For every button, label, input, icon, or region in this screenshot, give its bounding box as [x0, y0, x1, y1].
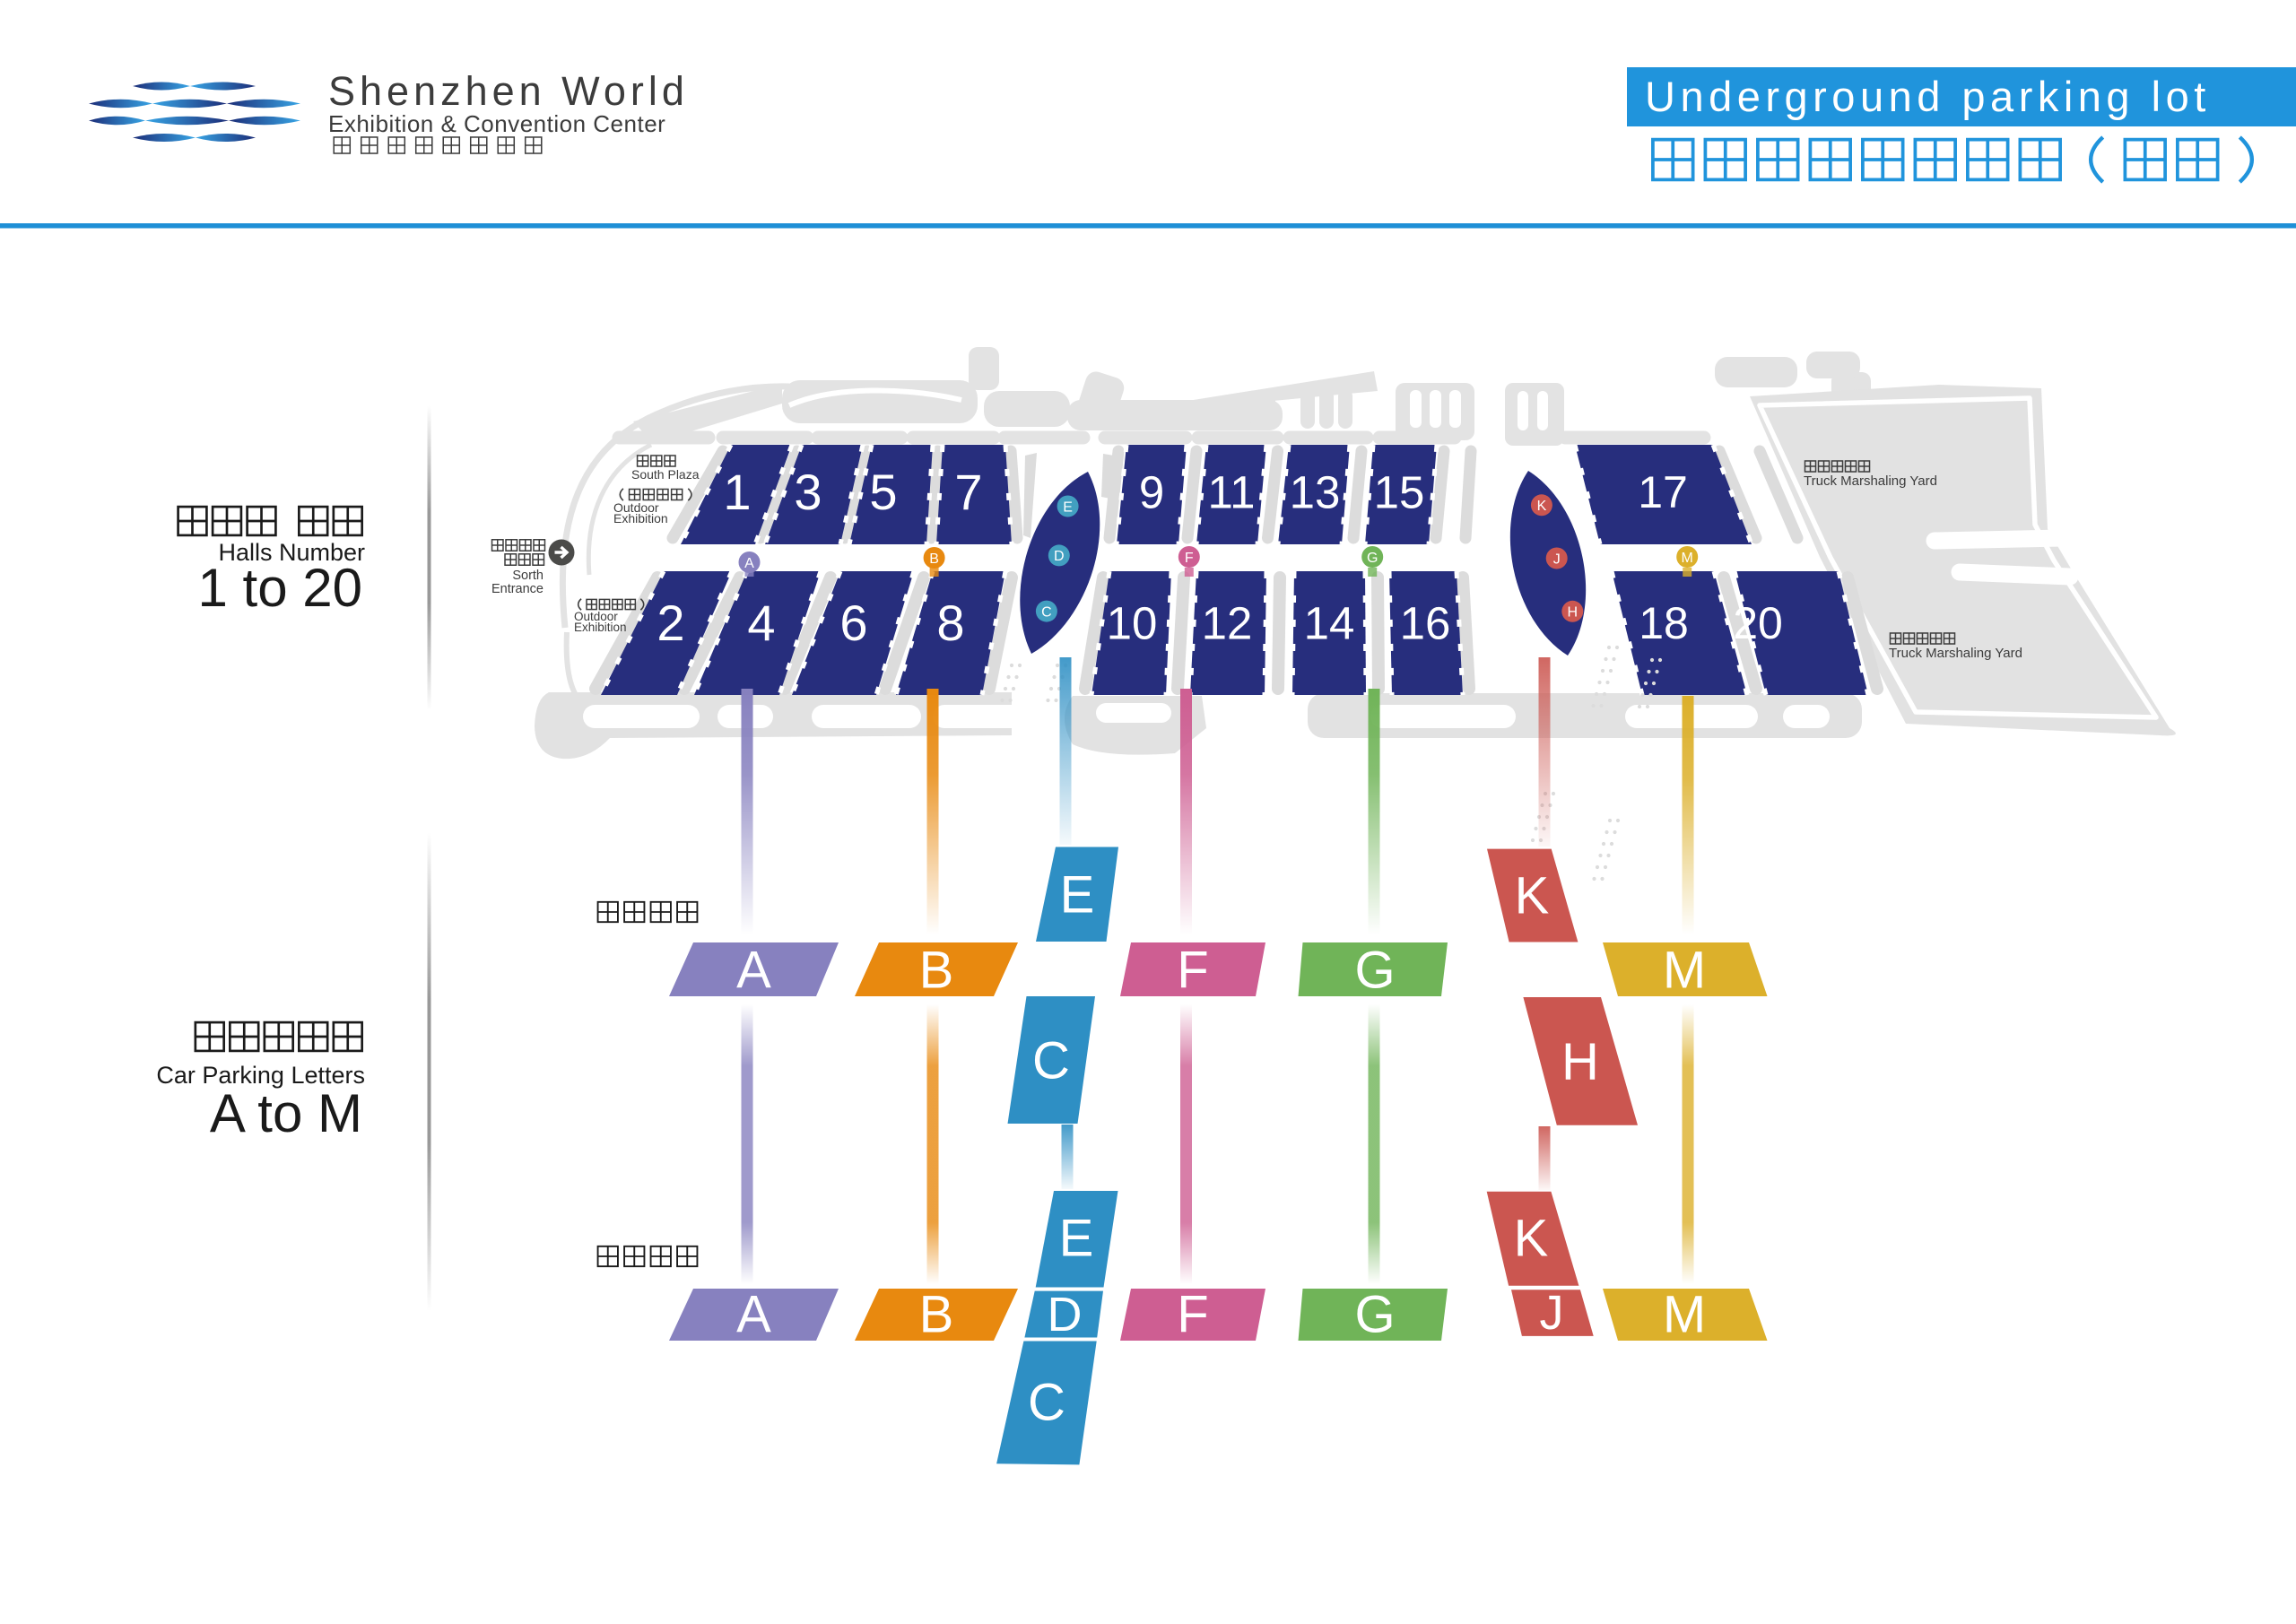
svg-text:20: 20 — [1733, 598, 1783, 648]
svg-text:15: 15 — [1374, 466, 1425, 517]
svg-text:1: 1 — [723, 464, 751, 520]
svg-text:Shenzhen World: Shenzhen World — [328, 68, 689, 114]
svg-text:A to M: A to M — [210, 1083, 362, 1143]
svg-text:G: G — [1354, 941, 1395, 999]
svg-text:10: 10 — [1107, 597, 1158, 648]
svg-text:4: 4 — [747, 595, 775, 651]
svg-text:B: B — [919, 1285, 954, 1343]
svg-text:Exhibition & Convention Center: Exhibition & Convention Center — [328, 110, 665, 137]
svg-text:E: E — [1059, 1209, 1094, 1267]
svg-text:7: 7 — [954, 464, 982, 520]
svg-text:C: C — [1032, 1031, 1070, 1090]
svg-text:B: B — [919, 941, 954, 999]
svg-text:M: M — [1663, 941, 1706, 999]
svg-text:9: 9 — [1139, 466, 1164, 517]
svg-text:K: K — [1515, 866, 1550, 925]
svg-text:K: K — [1537, 499, 1547, 514]
svg-text:8: 8 — [936, 595, 964, 651]
svg-text:12: 12 — [1202, 597, 1253, 648]
svg-text:B: B — [929, 551, 939, 567]
svg-text:17: 17 — [1638, 467, 1688, 517]
svg-text:A: A — [736, 941, 771, 999]
svg-text:South Plaza: South Plaza — [631, 467, 700, 482]
svg-text:J: J — [1540, 1286, 1564, 1340]
svg-text:Sorth: Sorth — [512, 569, 544, 583]
svg-text:D: D — [1048, 1288, 1083, 1342]
svg-text:H: H — [1568, 605, 1578, 621]
svg-text:3: 3 — [794, 464, 822, 520]
svg-text:J: J — [1553, 551, 1561, 567]
svg-text:2: 2 — [657, 595, 684, 651]
svg-text:Entrance: Entrance — [491, 582, 544, 596]
svg-text:F: F — [1177, 941, 1208, 999]
svg-text:14: 14 — [1304, 597, 1355, 648]
svg-text:D: D — [1054, 549, 1065, 564]
svg-text:E: E — [1063, 499, 1073, 515]
svg-text:18: 18 — [1639, 598, 1689, 648]
svg-text:5: 5 — [869, 464, 897, 520]
svg-text:H: H — [1561, 1032, 1599, 1090]
svg-text:G: G — [1367, 551, 1378, 566]
svg-text:Exhibition: Exhibition — [613, 511, 668, 525]
svg-text:6: 6 — [839, 595, 867, 651]
svg-text:13: 13 — [1290, 466, 1341, 517]
svg-text:F: F — [1177, 1285, 1208, 1343]
svg-text:Exhibition: Exhibition — [574, 621, 627, 634]
svg-text:11: 11 — [1208, 466, 1256, 517]
svg-text:M: M — [1663, 1285, 1706, 1343]
svg-text:Truck Marshaling Yard: Truck Marshaling Yard — [1889, 646, 2022, 661]
svg-text:A: A — [736, 1285, 771, 1343]
svg-text:E: E — [1060, 865, 1095, 924]
svg-text:Truck Marshaling Yard: Truck Marshaling Yard — [1804, 473, 1937, 489]
svg-text:C: C — [1041, 604, 1052, 620]
svg-text:Underground parking lot: Underground parking lot — [1645, 73, 2211, 120]
svg-text:16: 16 — [1400, 597, 1451, 648]
svg-text:1 to 20: 1 to 20 — [198, 558, 363, 618]
svg-text:M: M — [1682, 551, 1693, 566]
svg-text:G: G — [1354, 1285, 1395, 1343]
svg-text:C: C — [1028, 1373, 1065, 1431]
svg-text:K: K — [1514, 1209, 1549, 1267]
svg-text:F: F — [1185, 551, 1194, 566]
